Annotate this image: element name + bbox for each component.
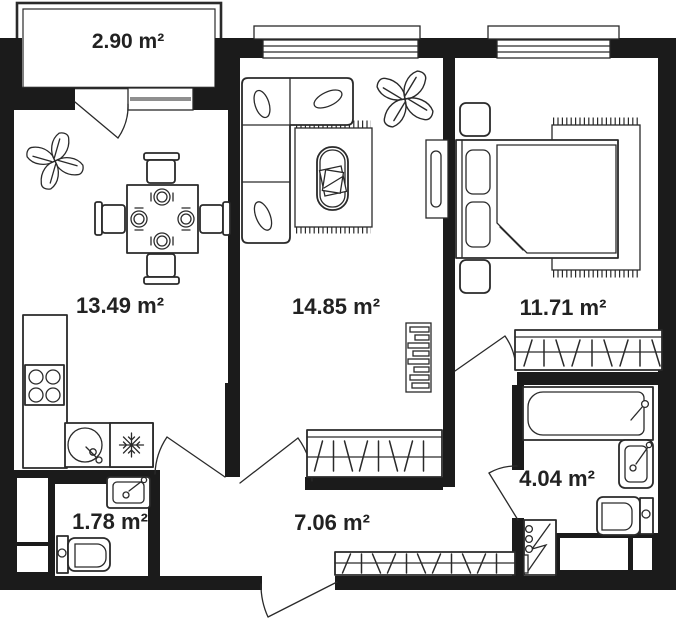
chair-icon: [95, 202, 102, 235]
bathroom-door-swing-icon: [489, 466, 518, 520]
chair-icon: [200, 205, 223, 233]
blanket: [497, 145, 616, 253]
kitchen-area-label: 13.49 m²: [76, 293, 164, 319]
nightstand-icon: [460, 260, 490, 293]
shelf-icon: [406, 323, 431, 392]
balcony-area-label: 2.90 m²: [92, 30, 164, 54]
toilet-icon: [597, 497, 653, 535]
bedroom-door-swing-icon: [455, 336, 516, 371]
window-sill-icon: [254, 26, 420, 39]
chair-icon: [144, 153, 179, 160]
coffee-table-icon: [317, 147, 348, 210]
washbasin-icon: [619, 440, 653, 488]
pillow-icon: [466, 202, 490, 247]
toilet-area-label: 1.78 m²: [72, 509, 148, 535]
shaft-niche: [633, 538, 652, 570]
bathroom-area-label: 4.04 m²: [519, 466, 595, 492]
bathtub-icon: [523, 387, 653, 440]
pillow-icon: [466, 150, 490, 194]
wardrobe-hatch-icon: [335, 552, 515, 575]
chair-icon: [102, 205, 125, 233]
toilet-icon: [57, 536, 110, 573]
living-area-label: 14.85 m²: [292, 294, 380, 320]
shaft-niche: [17, 478, 48, 542]
plant-icon: [364, 58, 445, 139]
floorplan: 2.90 m² 13.49 m² 14.85 m² 11.71 m² 7.06 …: [0, 0, 676, 620]
kitchen-door-swing-icon: [155, 437, 225, 477]
hallway-area-label: 7.06 m²: [294, 510, 370, 536]
chair-icon: [144, 277, 179, 284]
fridge-snowflake-icon: [110, 423, 153, 467]
shaft-niche: [17, 546, 48, 572]
entrance-door-swing-icon: [261, 582, 337, 617]
living-window: [254, 26, 420, 58]
washbasin-icon: [107, 477, 150, 508]
shaft-niche: [560, 538, 628, 570]
bedroom-window: [488, 26, 619, 58]
chair-icon: [223, 202, 230, 235]
bed-icon: [456, 140, 618, 258]
wardrobe-hatch-icon: [307, 430, 442, 477]
chair-icon: [147, 160, 175, 183]
living-door-swing-icon: [240, 438, 312, 483]
round-sink-icon: [68, 428, 102, 463]
dining-table-icon: [95, 153, 230, 284]
bedroom-area-label: 11.71 m²: [520, 295, 607, 321]
plant-icon: [24, 130, 85, 191]
balcony-door-swing-icon: [75, 102, 128, 138]
wardrobe-hatch-icon: [515, 330, 662, 370]
chair-icon: [147, 254, 175, 277]
window-sill-icon: [488, 26, 619, 39]
kitchen-window: [128, 88, 193, 110]
nightstand-icon: [460, 103, 490, 136]
radiator-icon: [426, 140, 448, 218]
electric-panel-icon: [524, 520, 556, 575]
stove-icon: [25, 365, 64, 405]
